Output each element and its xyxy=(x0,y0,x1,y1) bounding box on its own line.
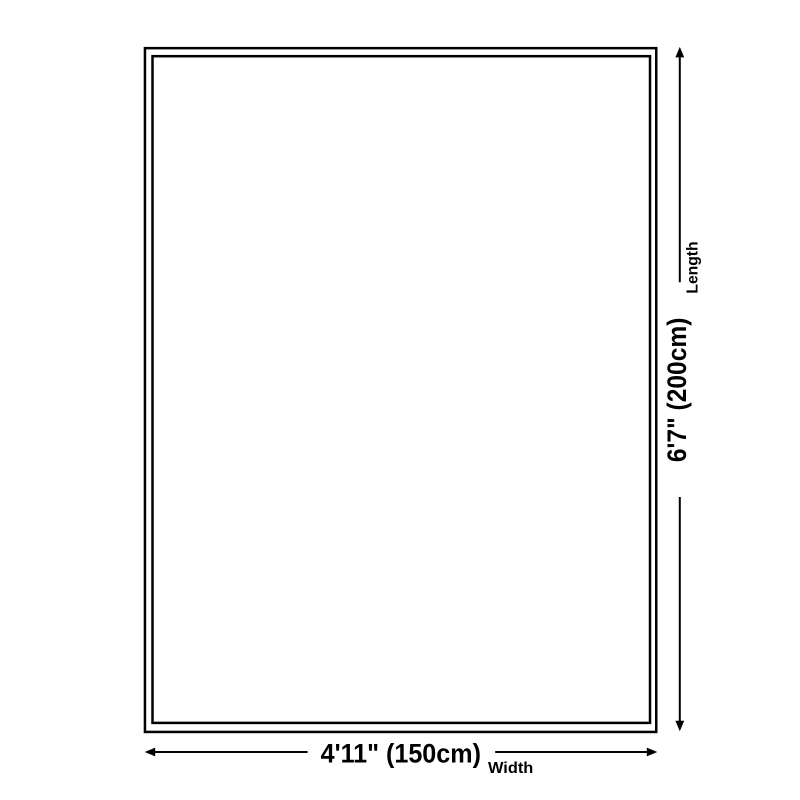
svg-text:6'7" (200cm): 6'7" (200cm) xyxy=(662,318,692,463)
svg-text:Length: Length xyxy=(685,241,702,293)
svg-text:Width: Width xyxy=(488,760,533,777)
svg-text:4'11" (150cm): 4'11" (150cm) xyxy=(321,739,481,769)
